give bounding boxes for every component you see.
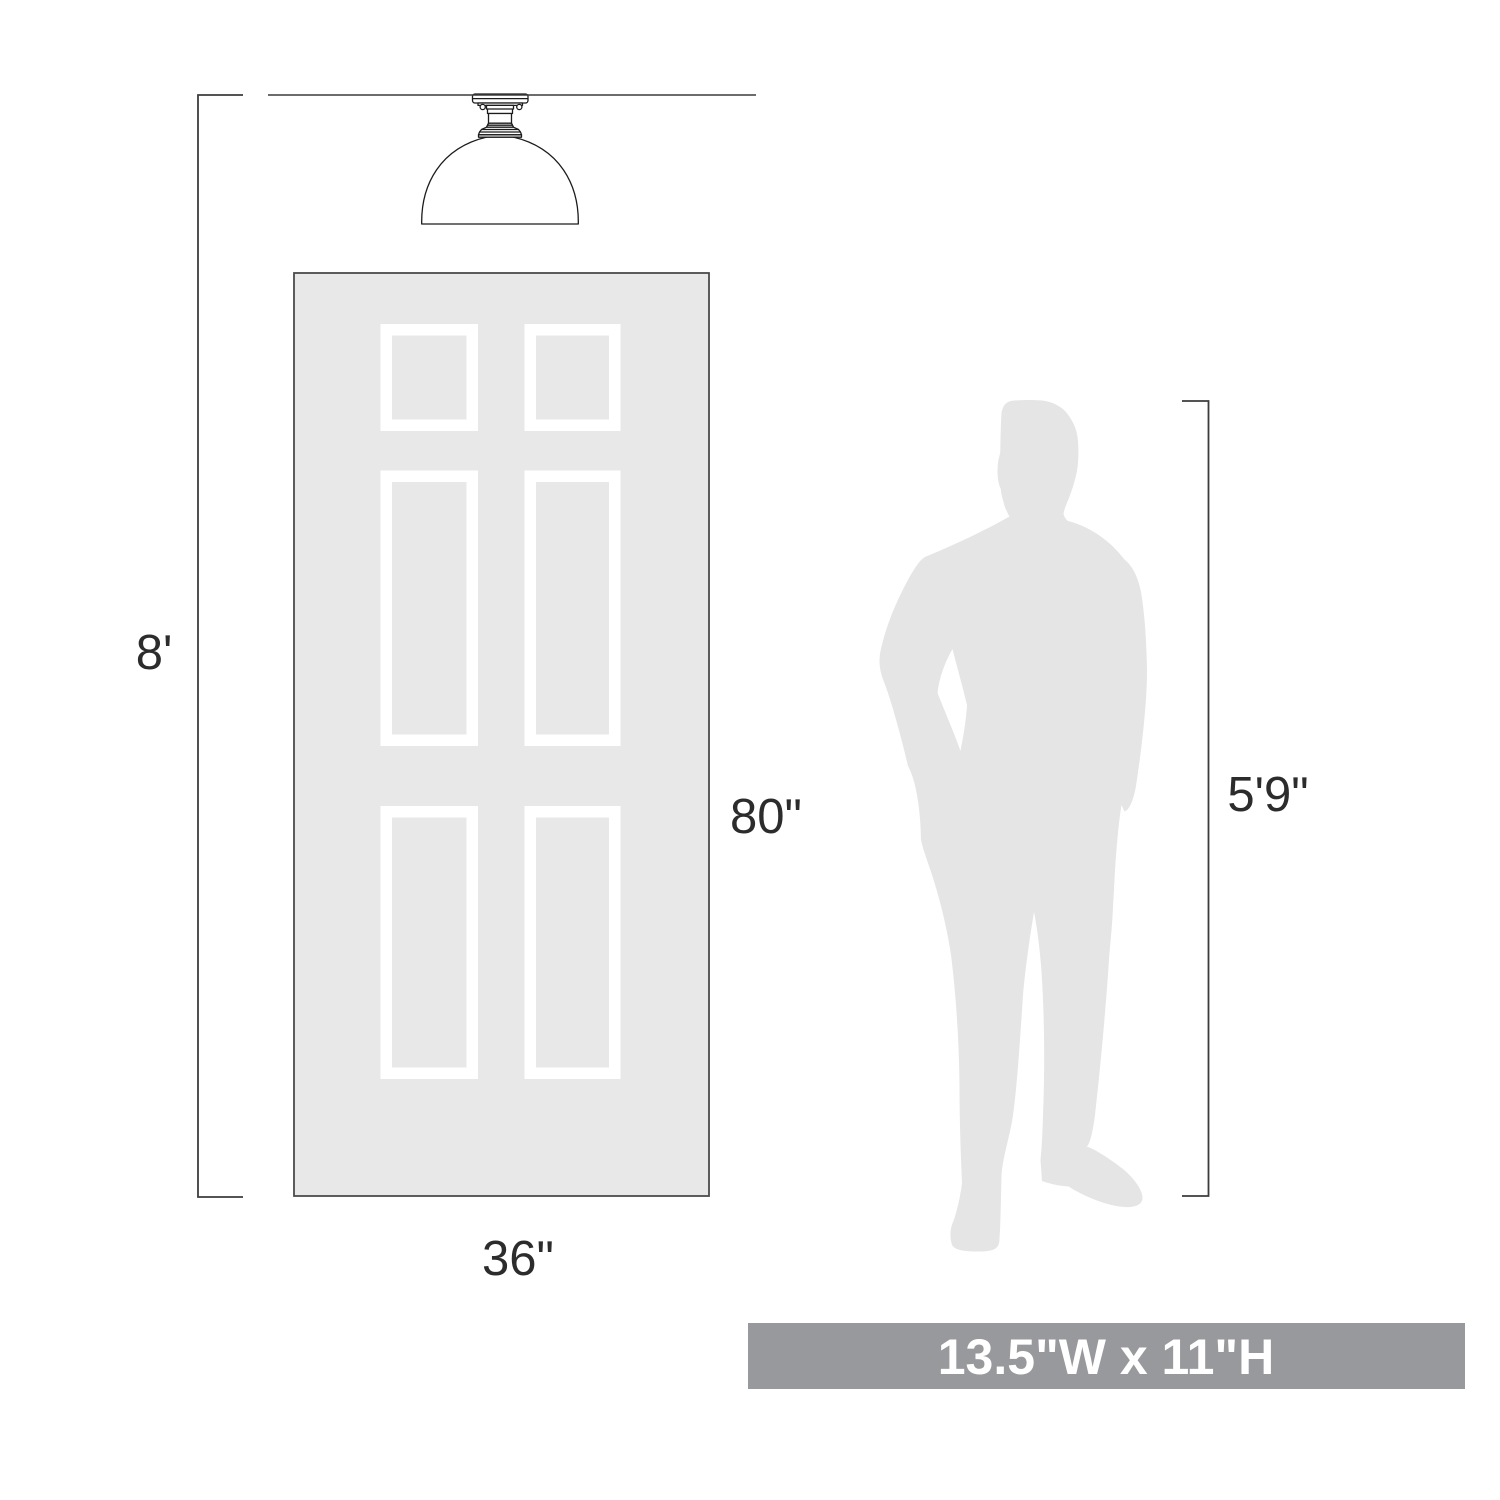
- svg-text:80": 80": [730, 790, 802, 844]
- svg-text:5'9": 5'9": [1227, 768, 1308, 822]
- svg-text:8': 8': [136, 626, 173, 680]
- svg-text:36": 36": [482, 1232, 554, 1286]
- svg-text:13.5"W x 11"H: 13.5"W x 11"H: [938, 1329, 1274, 1385]
